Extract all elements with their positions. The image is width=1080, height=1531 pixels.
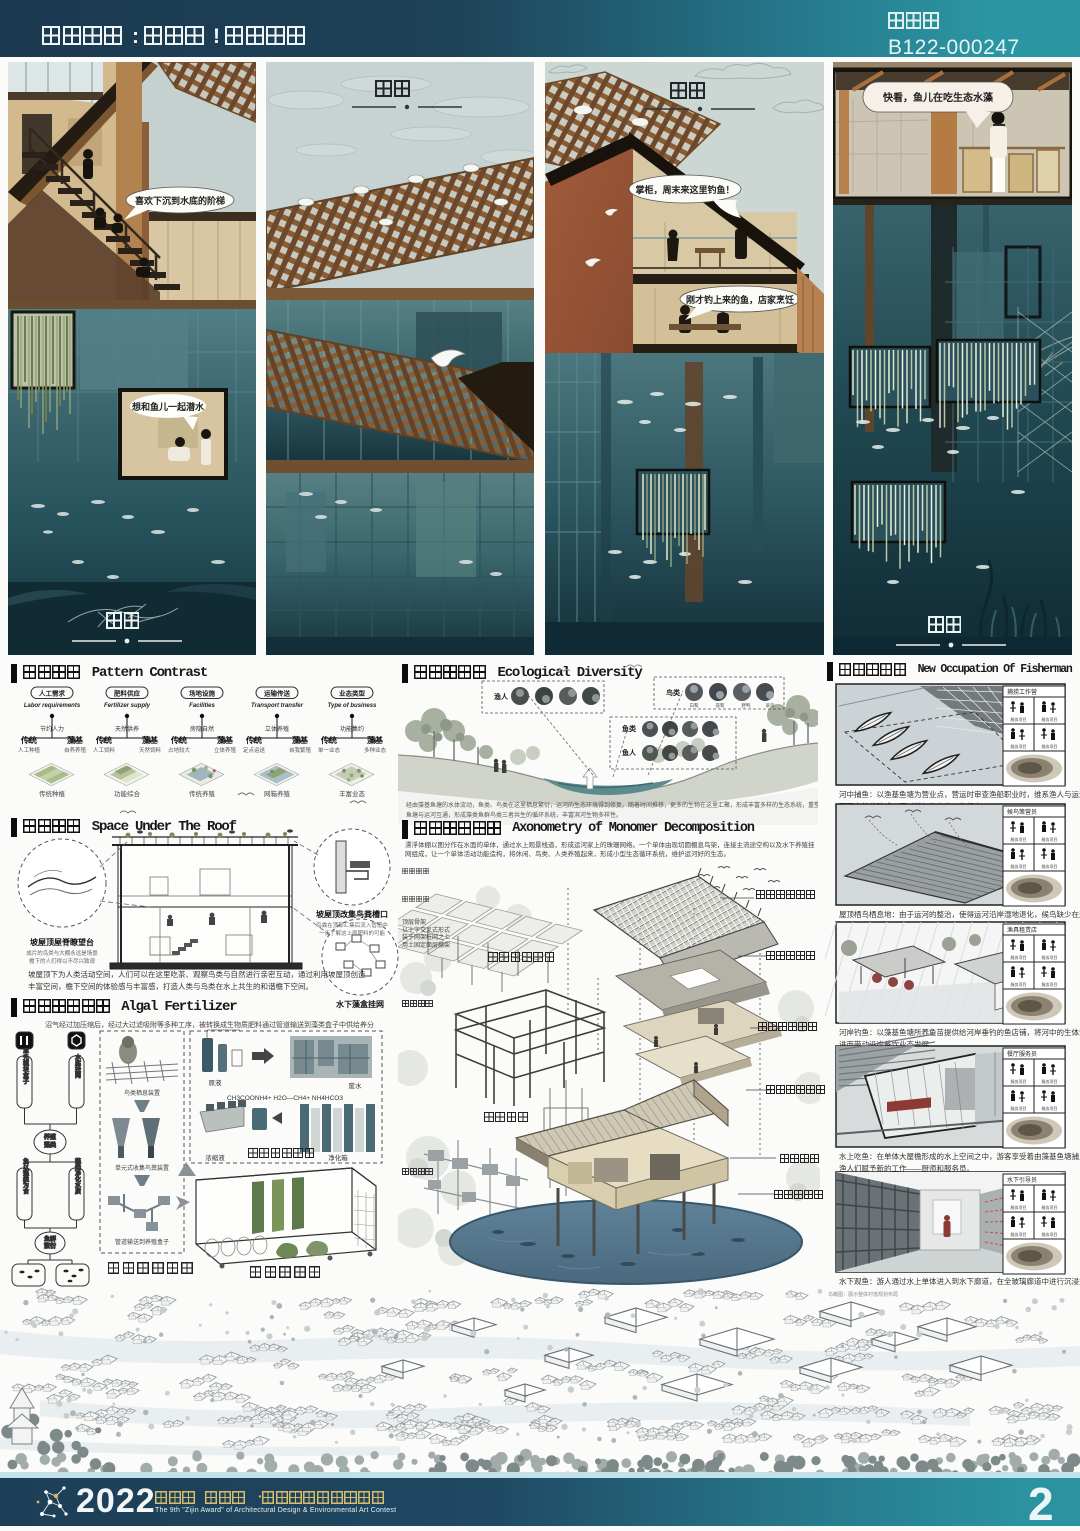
svg-text:水下观鱼：游人通过水上单体进入到水下廊道，在全玻璃廊道中进行: 水下观鱼：游人通过水上单体进入到水下廊道，在全玻璃廊道中进行沉浸式观赏鱼类， [839, 1276, 1080, 1286]
svg-text:鸟类栖息装置: 鸟类栖息装置 [124, 1089, 160, 1097]
svg-text:喜欢下沉到水底的阶梯: 喜欢下沉到水底的阶梯 [135, 195, 225, 206]
svg-text:服务项目: 服务项目 [1011, 716, 1027, 722]
svg-text:原液: 原液 [209, 1078, 223, 1087]
svg-text:服务项目: 服务项目 [1011, 1078, 1027, 1084]
svg-text:鱼人: 鱼人 [622, 748, 637, 757]
svg-text:单元式收集鸟粪装置: 单元式收集鸟粪装置 [115, 1164, 169, 1172]
svg-text:檐下的人们得以不尽兴致观: 檐下的人们得以不尽兴致观 [29, 957, 96, 965]
svg-text:水底挂网: 水底挂网 [74, 1053, 81, 1079]
svg-text:服务项目: 服务项目 [1042, 716, 1058, 722]
svg-text:废水: 废水 [349, 1081, 363, 1090]
svg-text:鸟类: 鸟类 [666, 688, 681, 697]
svg-text:服务项目: 服务项目 [1011, 863, 1027, 869]
svg-text:繁衍: 繁衍 [44, 1242, 56, 1250]
svg-text:单元模块盒子: 单元模块盒子 [22, 1047, 29, 1084]
svg-text:野鸭: 野鸭 [742, 702, 751, 709]
svg-text:服务项目: 服务项目 [1011, 1231, 1027, 1237]
svg-text:一步了解这上面肥料的可能: 一步了解这上面肥料的可能 [319, 929, 386, 937]
svg-text:坡屋顶下为人类活动空间，人们可以在这里吃茶、观察鸟类与自然进: 坡屋顶下为人类活动空间，人们可以在这里吃茶、观察鸟类与自然进行亲密互动，通过利用… [28, 969, 366, 979]
svg-text:服务项目: 服务项目 [1042, 836, 1058, 842]
svg-text:服务项目: 服务项目 [1042, 954, 1058, 960]
svg-text:服务项目: 服务项目 [1011, 743, 1027, 749]
svg-text:翠鸟: 翠鸟 [766, 702, 775, 709]
svg-text:服务项目: 服务项目 [1042, 1105, 1058, 1111]
svg-text:鸟粪在顶部汇集后流入管道中: 鸟粪在顶部汇集后流入管道中 [316, 921, 388, 929]
svg-text:白鹭: 白鹭 [690, 702, 699, 709]
svg-text:服务项目: 服务项目 [1042, 1078, 1058, 1084]
svg-text:候鸟策营员: 候鸟策营员 [1007, 808, 1037, 816]
svg-text:服务项目: 服务项目 [1011, 1105, 1027, 1111]
svg-text:鱼以藻类为食: 鱼以藻类为食 [22, 1157, 29, 1195]
svg-text:渔具租赁店: 渔具租赁店 [1007, 926, 1037, 934]
svg-text:刚才钓上来的鱼，店家烹饪: 刚才钓上来的鱼，店家烹饪 [686, 294, 794, 305]
svg-text:鱼塘与运河互通，形成藻类鱼群鸟类三者共生的循环系统，丰富滨河: 鱼塘与运河互通，形成藻类鱼群鸟类三者共生的循环系统，丰富滨河生物多样性。 [406, 811, 622, 819]
svg-text:坡屋顶改集鸟粪槽口: 坡屋顶改集鸟粪槽口 [316, 909, 388, 919]
svg-text:经由藻基鱼塘的水体流动，鱼类、鸟类在这里栖息繁衍，运河的生态: 经由藻基鱼塘的水体流动，鱼类、鸟类在这里栖息繁衍，运河的生态环境得到修复。随着时… [406, 801, 818, 809]
svg-text:服务项目: 服务项目 [1042, 863, 1058, 869]
svg-text:服务项目: 服务项目 [1011, 1204, 1027, 1210]
svg-text:渔人: 渔人 [494, 692, 509, 701]
svg-text:餐厅服务员: 餐厅服务员 [1007, 1050, 1037, 1058]
svg-text:成片的鸟类与大棚永远是场景: 成片的鸟类与大棚永远是场景 [26, 949, 98, 957]
svg-text:服务项目: 服务项目 [1011, 954, 1027, 960]
svg-text:鱼类: 鱼类 [622, 724, 637, 733]
svg-text:服务项目: 服务项目 [1042, 1204, 1058, 1210]
svg-text:藻类: 藻类 [44, 1141, 56, 1149]
svg-text:水下引导员: 水下引导员 [1007, 1176, 1037, 1184]
svg-text:坡屋顶屋脊瞭望台: 坡屋顶屋脊瞭望台 [30, 937, 94, 947]
svg-text:想和鱼儿一起潜水: 想和鱼儿一起潜水 [131, 401, 205, 412]
svg-text:水上吃鱼：在单体大屋檐形成的水上空间之中，游客享受着由藻基鱼: 水上吃鱼：在单体大屋檐形成的水上空间之中，游客享受着由藻基鱼塘捕上岸的鱼， [839, 1151, 1080, 1161]
svg-text:养殖: 养殖 [44, 1133, 56, 1141]
svg-text:服务项目: 服务项目 [1042, 743, 1058, 749]
svg-text:鱼群: 鱼群 [44, 1235, 56, 1243]
svg-text:服务项目: 服务项目 [1011, 981, 1027, 987]
svg-text:河岸钓鱼：以藻基鱼塘所养鱼苗提供给河岸垂钓的鱼店铺，将河中的: 河岸钓鱼：以藻基鱼塘所养鱼苗提供给河岸垂钓的鱼店铺，将河中的生体活力辐射到岸上， [839, 1027, 1080, 1037]
svg-text:掌柜，周末来这里钓鱼！: 掌柜，周末来这里钓鱼！ [635, 184, 734, 195]
svg-text:服务项目: 服务项目 [1011, 836, 1027, 842]
svg-text:河中捕鱼：以渔基鱼塘为营业点，营运时审查渔船职业时，维系渔人: 河中捕鱼：以渔基鱼塘为营业点，营运时审查渔船职业时，维系渔人与运河的联系，丰富人… [839, 789, 1080, 799]
svg-text:捕捞工作营: 捕捞工作营 [1007, 688, 1037, 696]
svg-text:管道输送到养殖盒子: 管道输送到养殖盒子 [115, 1238, 169, 1246]
svg-text:丰富空间，檐下空间的体验感与丰富感，打造人类与鸟类在水上共生: 丰富空间，檐下空间的体验感与丰富感，打造人类与鸟类在水上共生的和谐檐下空间。 [28, 981, 313, 991]
svg-text:服务项目: 服务项目 [1042, 1231, 1058, 1237]
svg-text:服务项目: 服务项目 [1042, 981, 1058, 987]
svg-text:屋顶栖鸟栖息地：由于运河的整治，使得运河沿岸湿地退化，候鸟缺: 屋顶栖鸟栖息地：由于运河的整治，使得运河沿岸湿地退化，候鸟缺少在运河沿岸可驻足栖… [839, 909, 1080, 919]
svg-text:藻类净化水质: 藻类净化水质 [74, 1157, 81, 1195]
svg-text:浓缩液: 浓缩液 [205, 1153, 225, 1162]
svg-text:鸟瞰图：展示整体村落规划布局: 鸟瞰图：展示整体村落规划布局 [828, 1291, 898, 1298]
svg-text:净化箱: 净化箱 [328, 1153, 348, 1162]
svg-text:夜鹭: 夜鹭 [716, 702, 725, 709]
